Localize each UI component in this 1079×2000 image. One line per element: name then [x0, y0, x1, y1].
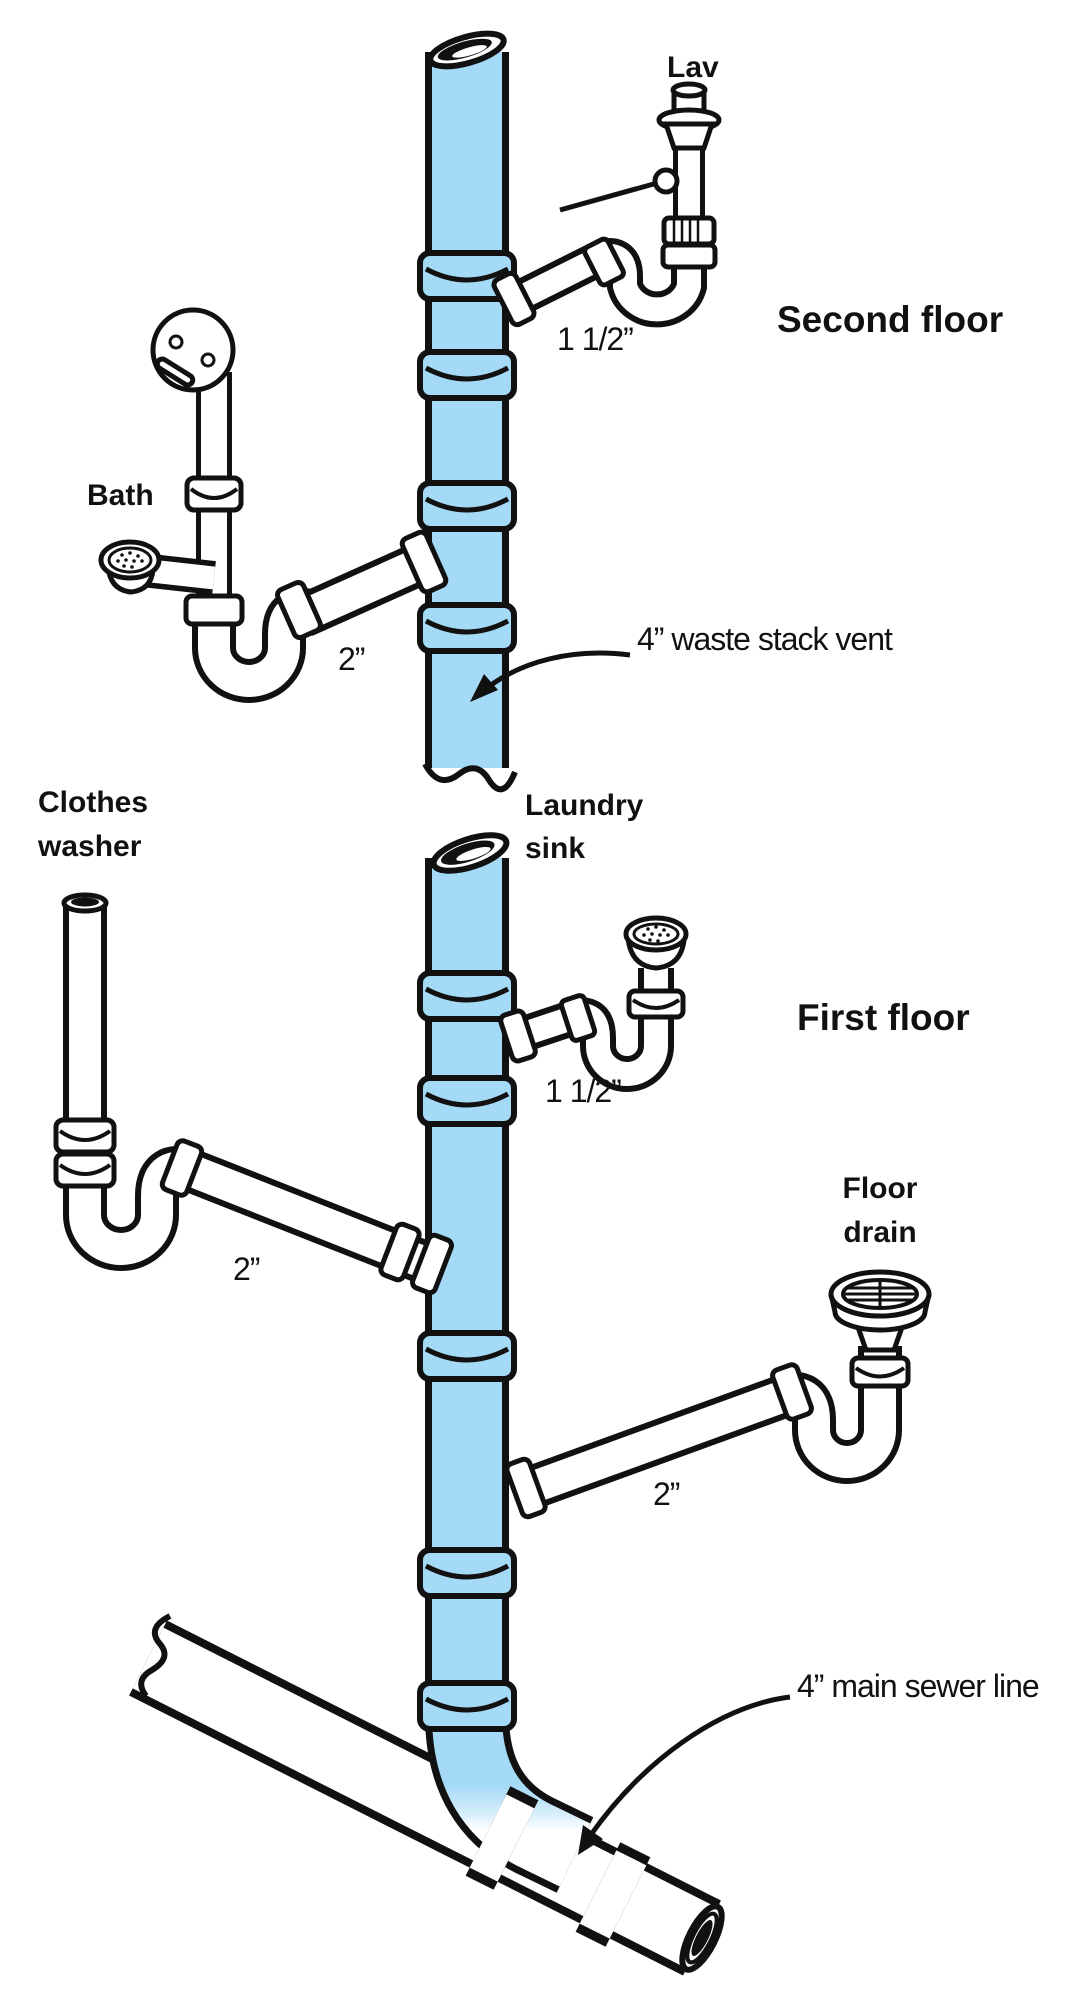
annotation-main-sewer-text: 4” main sewer line — [797, 1668, 1039, 1704]
stack-coupling — [420, 1078, 514, 1124]
annotation-stack-vent-text: 4” waste stack vent — [637, 621, 893, 657]
popup-rod-nut — [655, 170, 677, 192]
standpipe-opening — [64, 895, 106, 911]
label-bath: Bath — [87, 479, 154, 512]
pipe-coupling — [56, 1154, 114, 1186]
bath-strainer — [101, 542, 159, 592]
label-clothes-washer-line2: washer — [37, 830, 142, 863]
popup-rod — [560, 180, 668, 210]
floor-drain-assembly — [505, 1272, 929, 1518]
plumbing-diagram: Lav Second floor 1 1/2” Bath 2” 4” waste… — [0, 0, 1079, 2000]
label-first-floor: First floor — [797, 997, 970, 1038]
label-lav: Lav — [667, 51, 719, 84]
slip-nut — [629, 991, 683, 1017]
slip-nut — [186, 596, 242, 624]
dim-bath-branch: 2” — [338, 641, 365, 677]
label-second-floor: Second floor — [777, 299, 1003, 340]
floor-drain-grate — [831, 1272, 929, 1350]
stack-coupling — [420, 1683, 514, 1729]
stack-coupling — [420, 605, 514, 651]
laundry-sink-assembly — [499, 918, 686, 1074]
dim-laundry-branch: 1 1/2” — [545, 1073, 621, 1109]
dim-lav-branch: 1 1/2” — [557, 321, 633, 357]
label-laundry-sink-line1: Laundry — [525, 789, 644, 822]
label-floor-drain-line1: Floor — [843, 1172, 918, 1205]
dim-washer-branch: 2” — [233, 1251, 260, 1287]
slip-nut — [664, 218, 714, 244]
label-clothes-washer-line1: Clothes — [38, 786, 148, 819]
stack-coupling — [420, 352, 514, 398]
waste-stack-upper — [425, 27, 515, 789]
stack-coupling — [420, 973, 514, 1019]
label-floor-drain-line2: drain — [843, 1216, 916, 1249]
laundry-strainer — [626, 918, 686, 968]
annotation-main-sewer-arrow — [578, 1697, 790, 1855]
label-laundry-sink-line2: sink — [525, 832, 585, 865]
stack-coupling — [420, 1550, 514, 1596]
diagram-canvas: Lav Second floor 1 1/2” Bath 2” 4” waste… — [0, 0, 1079, 2000]
slip-joint-band — [663, 245, 715, 267]
lav-drain-flange — [659, 84, 719, 148]
dim-floor-drain-branch: 2” — [653, 1476, 680, 1512]
stack-coupling — [420, 1333, 514, 1379]
lav-assembly — [492, 84, 719, 327]
pipe-coupling — [56, 1120, 114, 1152]
bath-overflow-plate — [153, 310, 233, 390]
pipe-coupling — [852, 1358, 908, 1386]
stack-coupling — [420, 483, 514, 529]
clothes-washer-assembly — [56, 895, 453, 1294]
pipe-clamp — [187, 478, 241, 510]
